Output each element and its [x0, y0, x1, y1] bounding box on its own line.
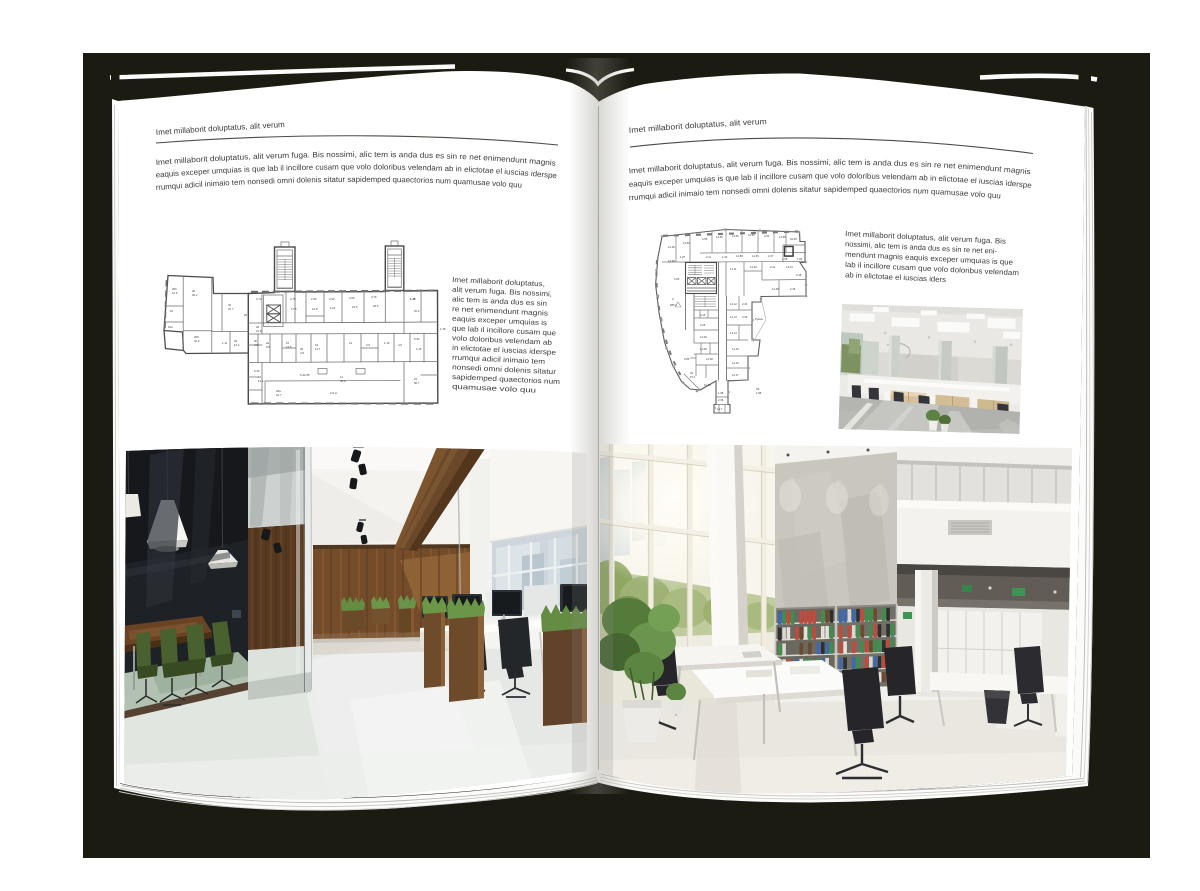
svg-text:14.08: 14.08 [700, 347, 707, 351]
svg-text:14.13: 14.13 [730, 315, 737, 319]
svg-text:14.60: 14.60 [683, 241, 690, 245]
svg-text:13.4: 13.4 [234, 343, 240, 347]
svg-text:2.41: 2.41 [770, 265, 776, 269]
svg-text:1.87: 1.87 [680, 255, 686, 259]
svg-text:19.5: 19.5 [352, 305, 358, 309]
svg-text:A: A [672, 297, 674, 301]
svg-text:42.2: 42.2 [194, 339, 200, 343]
svg-text:21.8: 21.8 [256, 329, 262, 333]
svg-text:14.30: 14.30 [750, 265, 757, 269]
svg-text:34.65: 34.65 [790, 237, 797, 241]
svg-text:1.45: 1.45 [410, 297, 416, 301]
svg-text:2-й эт: 2-й эт [330, 391, 338, 395]
svg-text:10.36: 10.36 [704, 383, 711, 387]
svg-text:14.48: 14.48 [772, 287, 779, 291]
svg-text:14.38: 14.38 [706, 357, 713, 361]
svg-text:14.65: 14.65 [716, 235, 723, 239]
svg-text:3.48: 3.48 [796, 273, 802, 277]
svg-text:3.39: 3.39 [742, 315, 748, 319]
svg-text:10a: 10a [168, 325, 173, 329]
svg-text:4.5: 4.5 [398, 343, 402, 347]
svg-text:14.7: 14.7 [717, 407, 723, 411]
svg-text:2.36: 2.36 [718, 398, 724, 402]
svg-text:4.60: 4.60 [764, 234, 770, 238]
svg-text:2.40: 2.40 [742, 302, 748, 306]
svg-text:3.65: 3.65 [674, 277, 680, 281]
svg-text:14.36: 14.36 [668, 245, 675, 249]
svg-text:4.65: 4.65 [702, 237, 708, 241]
svg-text:1.36: 1.36 [440, 327, 446, 331]
svg-text:26.5: 26.5 [373, 304, 379, 308]
svg-text:1.11: 1.11 [222, 341, 228, 345]
svg-text:2.47: 2.47 [768, 254, 774, 258]
svg-text:50.7: 50.7 [414, 381, 420, 385]
svg-text:12.8: 12.8 [312, 307, 318, 311]
svg-text:1.12: 1.12 [384, 341, 390, 345]
svg-text:3.85: 3.85 [684, 357, 690, 361]
svg-text:14.60: 14.60 [732, 234, 739, 238]
svg-text:14.88: 14.88 [736, 254, 743, 258]
svg-text:17.8: 17.8 [291, 307, 297, 311]
svg-text:14.11: 14.11 [730, 267, 737, 271]
svg-text:46.3: 46.3 [340, 379, 346, 383]
svg-text:1.88: 1.88 [756, 391, 762, 395]
svg-text:10: 10 [170, 309, 174, 313]
svg-text:2.93: 2.93 [311, 297, 317, 301]
svg-text:26: 26 [690, 371, 693, 375]
svg-text:1.55: 1.55 [782, 257, 788, 261]
svg-text:11.8: 11.8 [330, 306, 336, 310]
svg-text:3.09: 3.09 [349, 296, 355, 300]
svg-text:3.72: 3.72 [256, 297, 262, 301]
svg-text:15.1: 15.1 [690, 375, 696, 379]
svg-text:9.8: 9.8 [266, 345, 270, 349]
svg-text:1.43: 1.43 [416, 347, 422, 351]
svg-text:4.8: 4.8 [254, 343, 258, 347]
svg-text:25: 25 [244, 313, 248, 317]
svg-text:1.40: 1.40 [722, 255, 728, 259]
svg-text:12.1: 12.1 [258, 379, 264, 383]
svg-text:14.98: 14.98 [668, 259, 675, 263]
svg-text:30.2: 30.2 [192, 293, 198, 297]
svg-text:14.14: 14.14 [730, 331, 737, 335]
svg-text:14.16: 14.16 [732, 361, 739, 365]
svg-text:5-42.55: 5-42.55 [300, 373, 310, 377]
svg-text:ЛК: ЛК [756, 387, 760, 391]
svg-text:5.54: 5.54 [414, 337, 420, 341]
svg-text:31.7: 31.7 [276, 393, 282, 397]
svg-text:14.5: 14.5 [286, 345, 292, 349]
svg-text:2.92: 2.92 [329, 297, 335, 301]
svg-text:14.65: 14.65 [779, 235, 786, 239]
svg-text:3.79: 3.79 [371, 295, 377, 299]
svg-text:11.7: 11.7 [315, 347, 321, 351]
svg-text:32.2: 32.2 [414, 309, 420, 313]
svg-text:14.15: 14.15 [732, 347, 739, 351]
svg-text:12.6: 12.6 [172, 291, 178, 295]
svg-text:6.43: 6.43 [254, 369, 260, 373]
svg-text:Румэн: Румэн [755, 317, 763, 321]
svg-text:14.65: 14.65 [748, 233, 755, 237]
svg-text:2.75: 2.75 [290, 297, 296, 301]
svg-text:2.15: 2.15 [700, 313, 706, 317]
svg-text:14.44: 14.44 [786, 265, 793, 269]
svg-text:2.45: 2.45 [790, 287, 796, 291]
svg-text:2.26: 2.26 [700, 323, 706, 327]
svg-text:14.17: 14.17 [732, 373, 739, 377]
svg-text:585.1: 585.1 [670, 303, 677, 307]
svg-text:4.6: 4.6 [366, 343, 370, 347]
svg-text:1.98: 1.98 [718, 391, 724, 395]
svg-text:14.09: 14.09 [700, 335, 707, 339]
svg-text:14: 14 [349, 341, 353, 345]
svg-text:14.12: 14.12 [730, 302, 737, 306]
svg-text:37.7: 37.7 [228, 307, 234, 311]
svg-text:4.8: 4.8 [300, 351, 304, 355]
svg-text:14.65: 14.65 [752, 254, 759, 258]
svg-text:1.94: 1.94 [797, 257, 803, 261]
svg-text:2.11: 2.11 [706, 255, 712, 259]
